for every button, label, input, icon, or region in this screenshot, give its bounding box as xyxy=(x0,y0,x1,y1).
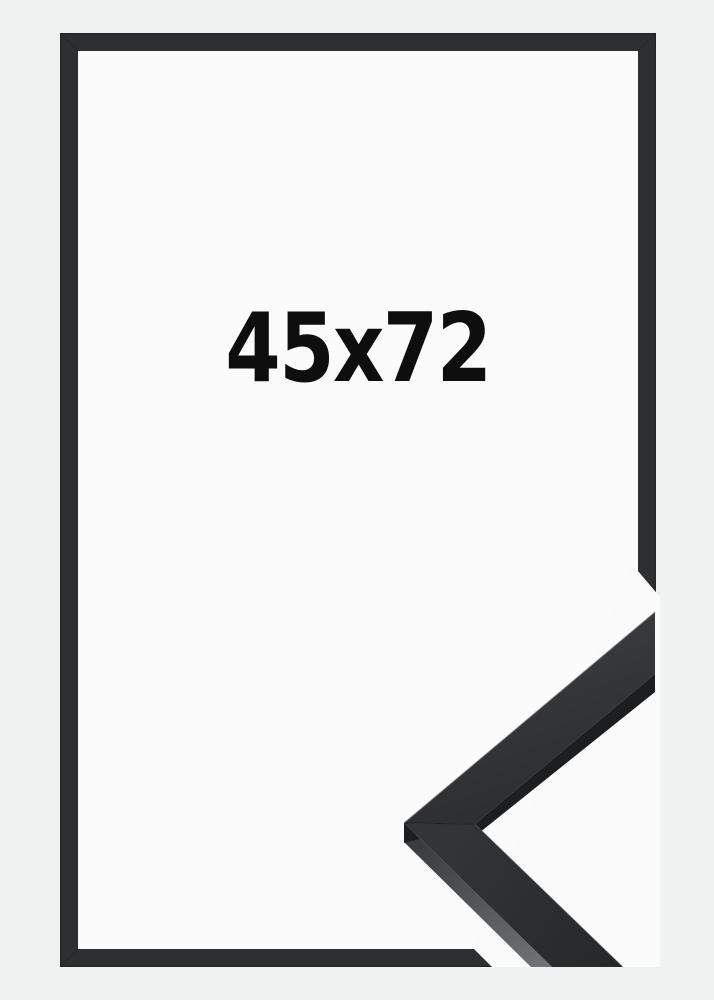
frame-photo xyxy=(0,0,714,1000)
product-image: 45x72 xyxy=(0,0,714,1000)
